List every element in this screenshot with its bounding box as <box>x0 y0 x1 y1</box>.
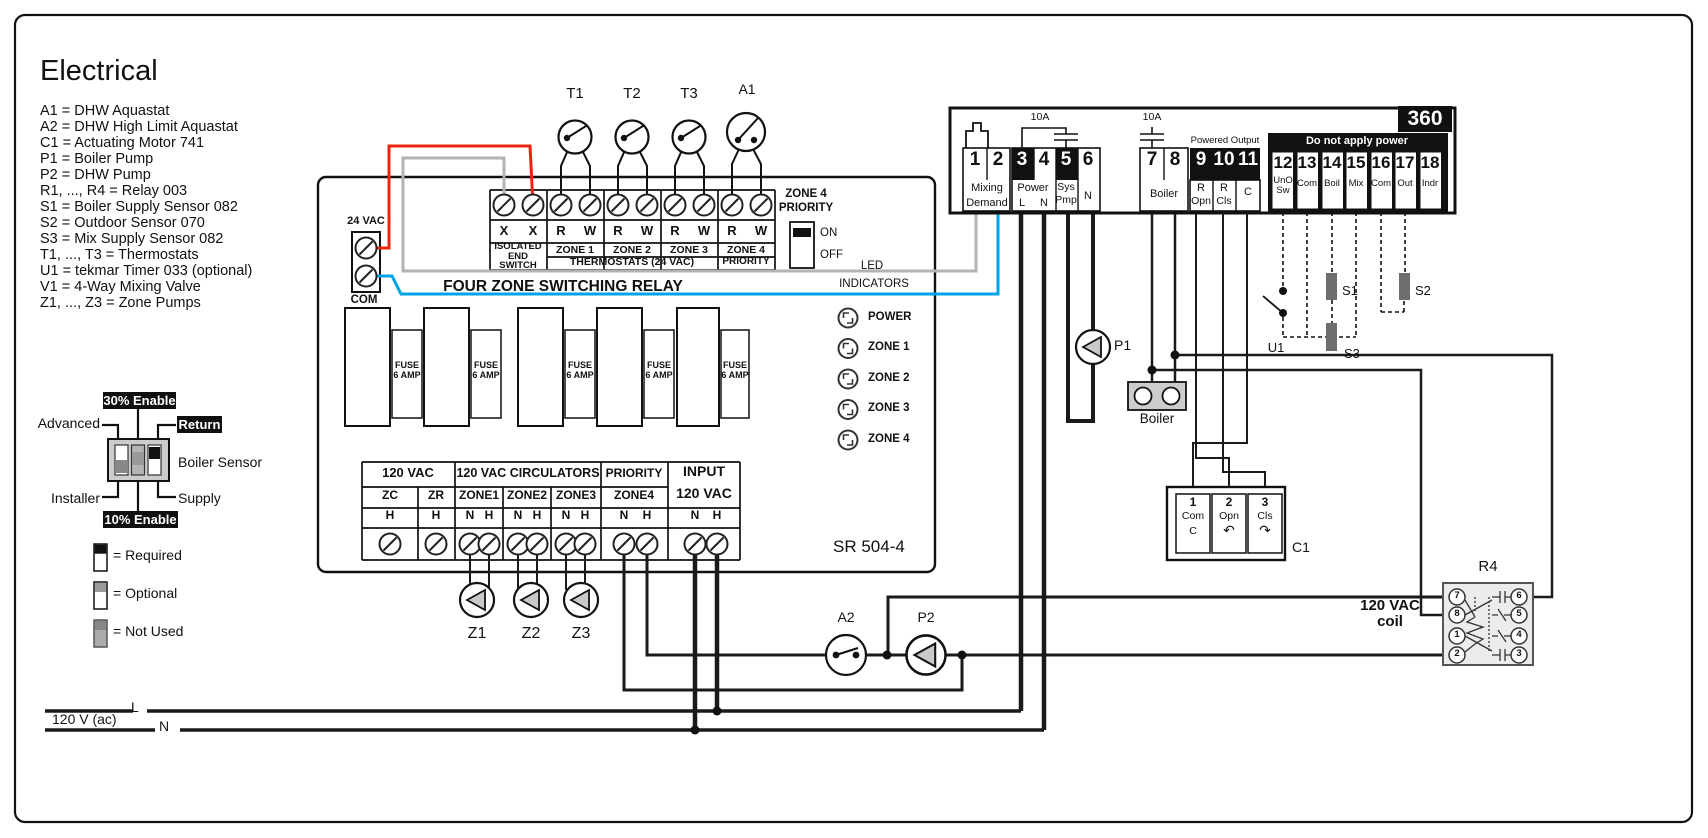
c1-cls-arrow-icon: ↷ <box>1259 523 1271 538</box>
term-letter: W <box>641 224 653 238</box>
t1-label: T1 <box>566 86 584 102</box>
term-letter: R <box>670 224 679 238</box>
led-label: ZONE 2 <box>868 372 910 384</box>
dip-return-chip: Return <box>177 416 222 433</box>
priority-label: PRIORITY <box>722 257 769 268</box>
electrical-wiring-diagram: Electrical A1 = DHW Aquastat A2 = DHW Hi… <box>0 0 1708 838</box>
pump-p2-icon <box>906 635 945 674</box>
t360-no-power: Do not apply power <box>1306 136 1408 148</box>
t360-t12-label: UnO Sw <box>1273 176 1293 197</box>
isolated-end-switch-label: ISOLATED END SWITCH <box>494 242 541 271</box>
fuse-label: FUSE 6 AMP <box>393 360 420 381</box>
t360-term: 5 <box>1061 150 1072 170</box>
strip-letter: H <box>432 509 441 522</box>
term-letter: W <box>584 224 596 238</box>
term-letter: X <box>529 224 538 238</box>
dip-boiler-sensor-label: Boiler Sensor <box>178 455 262 470</box>
strip-header-input: INPUT <box>683 464 725 479</box>
c1-term-1: 1 <box>1190 496 1197 509</box>
dip-advanced-label: Advanced <box>38 416 100 431</box>
u1-label: U1 <box>1268 341 1285 355</box>
switch-key-icons <box>94 544 107 647</box>
sensor-wires-dashed <box>1283 212 1405 337</box>
strip-col: ZONE3 <box>556 489 596 502</box>
strip-letter: H <box>581 509 590 522</box>
t360-t17-label: Out <box>1397 179 1412 189</box>
strip-col: ZONE1 <box>459 489 499 502</box>
strip-col: ZC <box>382 489 398 502</box>
t360-term: 4 <box>1039 150 1050 170</box>
mains-n-label: N <box>159 719 169 734</box>
strip-col: ZONE2 <box>507 489 547 502</box>
z2-label: Z2 <box>522 626 541 643</box>
t360-demand: Demand <box>966 198 1008 210</box>
led-heading: LED <box>861 260 883 272</box>
c1-label: C1 <box>1292 540 1310 555</box>
led-heading2: INDICATORS <box>839 278 909 290</box>
strip-letter: N <box>514 509 523 522</box>
strip-letter: H <box>713 509 722 522</box>
fuse-10a-icon-1 <box>1022 128 1078 148</box>
t360-fuse1-label: 10A <box>1031 112 1050 123</box>
term-letter: R <box>727 224 736 238</box>
t360-r-cls: R <box>1220 183 1228 195</box>
strip-letter: N <box>466 509 475 522</box>
t360-term: 10 <box>1213 150 1234 170</box>
legend-item: S2 = Outdoor Sensor 070 <box>40 216 205 231</box>
t360-c: C <box>1244 187 1252 199</box>
zone-label: ZONE 3 <box>670 245 708 256</box>
t360-term: 12 <box>1274 154 1293 172</box>
dip-30-enable-chip: 30% Enable <box>103 392 176 409</box>
s2-label: S2 <box>1415 284 1431 298</box>
thermostat-t3-icon <box>673 121 706 154</box>
z3-label: Z3 <box>572 626 591 643</box>
pump-p1-icon <box>1076 330 1110 364</box>
key-required-label: = Required <box>113 548 182 563</box>
term-letter: R <box>556 224 565 238</box>
led-label: POWER <box>868 311 911 323</box>
page-title: Electrical <box>40 56 158 86</box>
thermostats-label: THERMOSTATS (24 VAC) <box>570 257 694 268</box>
strip-header-circulators: 120 VAC CIRCULATORS <box>456 467 599 480</box>
t360-pmp: Pmp <box>1055 195 1077 206</box>
legend-item: R1, ..., R4 = Relay 003 <box>40 184 187 199</box>
t360-term: 9 <box>1196 150 1207 170</box>
zone4-priority-label: ZONE 4 <box>785 188 827 200</box>
c1-cls: Cls <box>1257 511 1272 522</box>
r4-term: 5 <box>1516 609 1521 619</box>
c1-term-3: 3 <box>1262 496 1269 509</box>
boiler-icon <box>1128 382 1186 410</box>
z1-label: Z1 <box>468 626 487 643</box>
zone-label: ZONE 2 <box>613 245 651 256</box>
t360-term: 3 <box>1017 150 1028 170</box>
thermostat-t1-icon <box>559 121 592 154</box>
t360-powered-output: Powered Output <box>1191 136 1260 146</box>
t360-term: 18 <box>1421 154 1440 172</box>
t360-sys: Sys <box>1057 182 1075 193</box>
thermostat-t2-icon <box>616 121 649 154</box>
t360-term: 8 <box>1170 150 1181 170</box>
legend-item: S1 = Boiler Supply Sensor 082 <box>40 200 238 215</box>
strip-letter: N <box>620 509 629 522</box>
r4-term: 1 <box>1454 630 1459 640</box>
s1-label: S1 <box>1342 284 1358 298</box>
r4-term: 7 <box>1454 591 1459 601</box>
sr-title: FOUR ZONE SWITCHING RELAY <box>443 279 683 295</box>
strip-col: ZONE4 <box>614 489 654 502</box>
t2-label: T2 <box>623 86 641 102</box>
strip-letter: H <box>386 509 395 522</box>
sensor-s3-icon <box>1326 323 1337 351</box>
r4-term: 2 <box>1454 649 1459 659</box>
t360-term: 11 <box>1238 150 1258 170</box>
c1-opn-arrow-icon: ↶ <box>1223 523 1235 538</box>
legend-item: S3 = Mix Supply Sensor 082 <box>40 232 223 247</box>
strip-col: ZR <box>428 489 444 502</box>
legend-item: T1, ..., T3 = Thermostats <box>40 248 199 263</box>
t360-mixing: Mixing <box>971 183 1003 195</box>
a2-label: A2 <box>837 610 854 625</box>
term-letter: R <box>613 224 622 238</box>
legend-item: A2 = DHW High Limit Aquastat <box>40 120 238 135</box>
legend-item: U1 = tekmar Timer 033 (optional) <box>40 264 252 279</box>
t360-boiler: Boiler <box>1150 189 1178 201</box>
aquastat-a1-icon <box>727 113 765 151</box>
r4-term: 3 <box>1516 649 1521 659</box>
strip-letter: H <box>485 509 494 522</box>
term-letter: W <box>698 224 710 238</box>
t3-label: T3 <box>680 86 698 102</box>
t360-opn: Opn <box>1191 196 1211 207</box>
pump-z2-icon <box>514 583 548 617</box>
t360-n2: N <box>1084 191 1092 203</box>
dip-supply-label: Supply <box>178 491 221 506</box>
legend-item: V1 = 4-Way Mixing Valve <box>40 280 201 295</box>
r4-term: 4 <box>1516 630 1521 640</box>
sensor-s2-icon <box>1399 273 1410 300</box>
legend-item: P1 = Boiler Pump <box>40 152 153 167</box>
pump-z3-icon <box>564 583 598 617</box>
strip-header-input2: 120 VAC <box>676 486 732 501</box>
t360-t18-label: Indr <box>1422 179 1438 189</box>
t360-l: L <box>1019 198 1025 210</box>
legend-item: C1 = Actuating Motor 741 <box>40 136 204 151</box>
pump-z1-icon <box>460 583 494 617</box>
t360-term: 2 <box>993 150 1004 170</box>
zone-label: ZONE 4 <box>727 245 765 256</box>
term-letter: W <box>755 224 767 238</box>
t360-term: 13 <box>1298 154 1317 172</box>
aquastat-a2-icon <box>826 635 866 675</box>
t360-power: Power <box>1017 183 1048 195</box>
t360-r-opn: R <box>1197 183 1205 195</box>
t360-t13-label: Com <box>1297 179 1317 189</box>
led-label: ZONE 4 <box>868 433 910 445</box>
timer-u1-icon <box>1263 287 1287 317</box>
r4-term: 8 <box>1454 609 1459 619</box>
sr-24vac-label: 24 VAC <box>347 216 385 228</box>
led-label: ZONE 3 <box>868 402 910 414</box>
r4-label: R4 <box>1478 559 1497 575</box>
t360-fuse2-label: 10A <box>1143 112 1162 123</box>
zone-label: ZONE 1 <box>556 245 594 256</box>
mains-l-label: L <box>131 700 139 715</box>
t360-term: 1 <box>970 150 981 170</box>
r4-term: 6 <box>1516 591 1521 601</box>
legend-item: Z1, ..., Z3 = Zone Pumps <box>40 296 201 311</box>
t360-term: 17 <box>1396 154 1415 172</box>
t360-t15-label: Mix <box>1349 179 1364 189</box>
t360-term: 7 <box>1147 150 1158 170</box>
fuse-label: FUSE 6 AMP <box>566 360 593 381</box>
thermostat-leads <box>561 149 761 196</box>
boiler-label: Boiler <box>1140 412 1175 426</box>
strip-letter: N <box>691 509 700 522</box>
legend-item: A1 = DHW Aquastat <box>40 104 169 119</box>
strip-header-120vac: 120 VAC <box>382 466 434 480</box>
term-letter: X <box>500 224 509 238</box>
strip-header-priority: PRIORITY <box>606 467 663 480</box>
dip-switch-graphic <box>102 409 176 511</box>
t360-n: N <box>1040 198 1048 210</box>
fuse-label: FUSE 6 AMP <box>472 360 499 381</box>
t360-badge: 360 <box>1398 106 1452 132</box>
t360-term: 15 <box>1347 154 1366 172</box>
key-optional-label: = Optional <box>113 586 177 601</box>
zone4-priority-label2: PRIORITY <box>779 202 833 214</box>
fuse-label: FUSE 6 AMP <box>721 360 748 381</box>
sensor-s1-icon <box>1326 273 1337 300</box>
c1-c: C <box>1189 526 1197 537</box>
sr-com-label: COM <box>351 294 378 306</box>
dip-10-enable-chip: 10% Enable <box>103 511 178 528</box>
c1-com: Com <box>1182 511 1204 522</box>
sr-model-label: SR 504-4 <box>833 538 905 556</box>
priority-on-label: ON <box>820 227 837 239</box>
strip-letter: H <box>643 509 652 522</box>
priority-off-label: OFF <box>820 249 843 261</box>
key-not-used-label: = Not Used <box>113 624 183 639</box>
t360-t16-label: Com <box>1371 179 1391 189</box>
strip-letter: H <box>533 509 542 522</box>
demand-symbol-icon <box>966 123 988 148</box>
legend-item: P2 = DHW Pump <box>40 168 151 183</box>
fuse-label: FUSE 6 AMP <box>645 360 672 381</box>
t360-t14-label: Boil <box>1324 179 1340 189</box>
coil-label: 120 VAC coil <box>1360 598 1420 630</box>
t360-cls: Cls <box>1216 196 1231 207</box>
line-voltage-wires <box>45 212 1552 730</box>
p1-label: P1 <box>1114 338 1131 353</box>
strip-letter: N <box>562 509 571 522</box>
led-label: ZONE 1 <box>868 341 910 353</box>
fuse-10a-icon-2 <box>1140 127 1164 148</box>
t360-term: 16 <box>1372 154 1391 172</box>
t360-term: 6 <box>1083 150 1094 170</box>
c1-opn: Opn <box>1219 511 1239 522</box>
a1-label: A1 <box>738 82 755 97</box>
c1-term-2: 2 <box>1226 496 1233 509</box>
dip-installer-label: Installer <box>51 491 100 506</box>
s3-label: S3 <box>1344 347 1360 361</box>
led-indicators <box>839 309 858 450</box>
p2-label: P2 <box>917 610 934 625</box>
mains-voltage-label: 120 V (ac) <box>52 712 117 727</box>
t360-term: 14 <box>1323 154 1342 172</box>
